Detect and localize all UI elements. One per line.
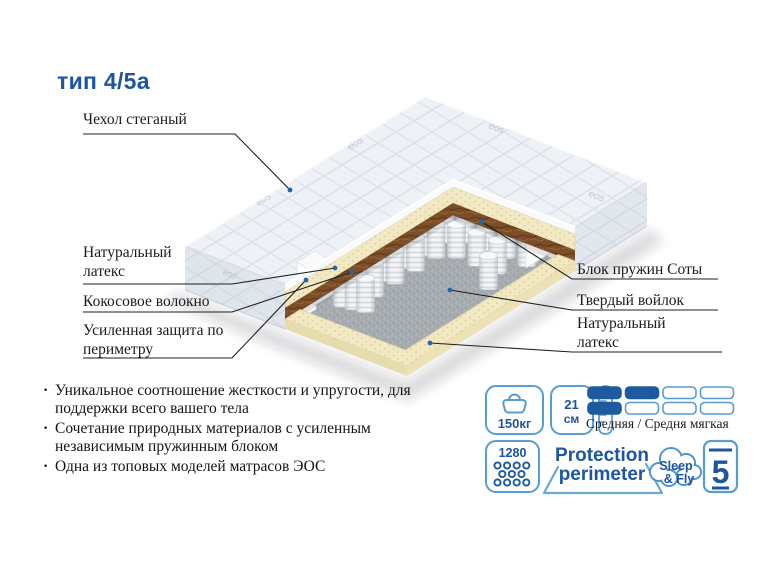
label-cover: Чехол стеганый: [83, 110, 283, 129]
svg-text:см: см: [564, 412, 580, 426]
label-perimeter-protection: Усиленная защита по периметру: [83, 321, 251, 359]
svg-text:& Fly: & Fly: [664, 472, 695, 486]
mattress-cutaway-illustration: eos eos eos eos eos: [0, 0, 768, 568]
svg-text:21: 21: [564, 397, 578, 412]
infographic-page: тип 4/5а: [0, 0, 768, 568]
label-latex-bottom: Натуральный латекс: [577, 314, 697, 352]
firmness-scale: [588, 387, 734, 414]
svg-text:1280: 1280: [499, 446, 527, 460]
label-coconut: Кокосовое волокно: [83, 292, 293, 311]
label-felt: Твердый войлок: [577, 291, 737, 310]
feature-item: Сочетание природных материалов с усиленн…: [42, 420, 434, 456]
features-list: Уникальное соотношение жесткости и упруг…: [42, 382, 434, 478]
feature-item: Одна из топовых моделей матрасов ЭОС: [42, 458, 434, 476]
protection-perimeter-logo: Protection perimeter: [544, 445, 662, 493]
label-spring-block: Блок пружин Соты: [577, 260, 737, 279]
feature-item: Уникальное соотношение жесткости и упруг…: [42, 382, 434, 418]
badge-max-weight: 150кг: [486, 386, 543, 434]
kettlebell-icon: [503, 395, 526, 413]
svg-text:5: 5: [712, 454, 730, 490]
warranty-badge: 5: [704, 441, 737, 492]
svg-text:150кг: 150кг: [498, 416, 532, 431]
svg-text:Protection: Protection: [555, 445, 649, 466]
badge-spring-count: 1280: [486, 441, 539, 492]
svg-text:Sleep: Sleep: [659, 459, 693, 473]
springs-icon: [494, 462, 529, 485]
svg-text:perimeter: perimeter: [559, 464, 646, 485]
label-latex-top: Натуральный латекс: [83, 243, 203, 281]
sleep-fly-logo: Sleep & Fly: [650, 448, 701, 486]
firmness-label: Средняя / Средня мягкая: [586, 416, 756, 432]
